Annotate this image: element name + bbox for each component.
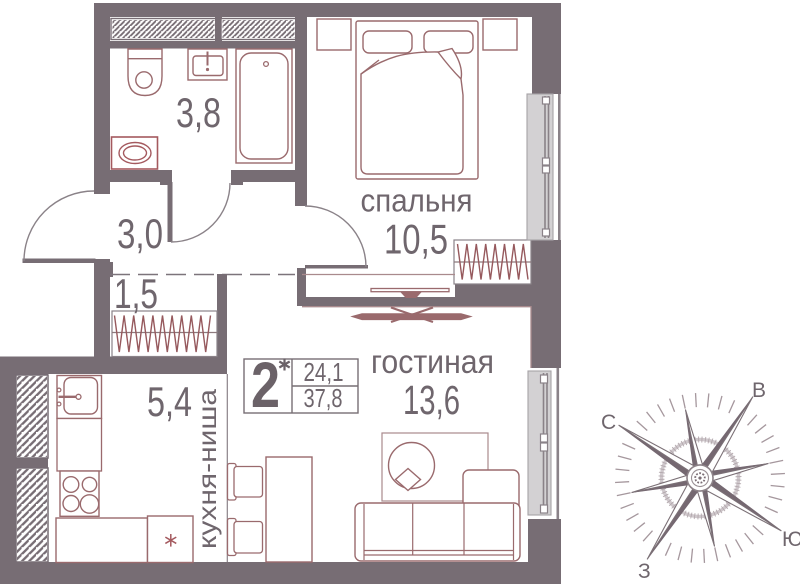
svg-text:10,5: 10,5 — [384, 216, 448, 263]
svg-text:37,8: 37,8 — [304, 383, 343, 413]
svg-text:2: 2 — [251, 349, 280, 421]
svg-text:1,5: 1,5 — [114, 270, 158, 317]
svg-text:гостиная: гостиная — [371, 343, 494, 380]
svg-text:кухня-ниша: кухня-ниша — [192, 388, 222, 549]
svg-text:13,6: 13,6 — [403, 377, 460, 423]
svg-text:Ю: Ю — [782, 528, 800, 551]
svg-text:В: В — [752, 379, 766, 402]
svg-text:спальня: спальня — [361, 183, 473, 219]
svg-text:С: С — [601, 411, 616, 434]
svg-text:3,0: 3,0 — [117, 210, 163, 257]
svg-text:5,4: 5,4 — [147, 378, 192, 425]
svg-text:З: З — [638, 560, 651, 583]
svg-text:3,8: 3,8 — [176, 89, 221, 136]
